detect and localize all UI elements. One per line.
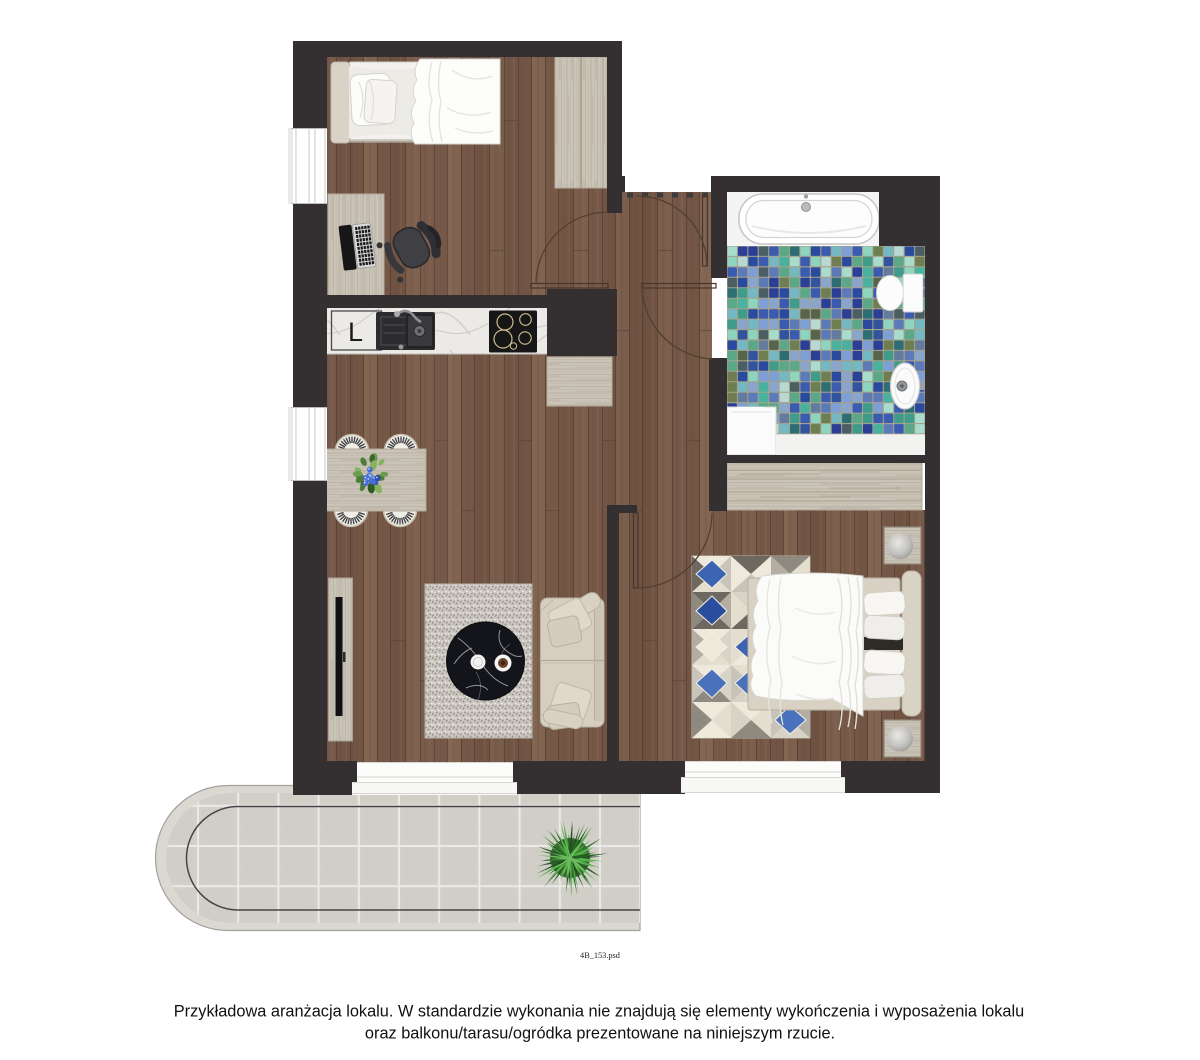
svg-text:L: L (348, 317, 363, 347)
svg-text:Przykładowa aranżacja lokalu.: Przykładowa aranżacja lokalu. W standard… (174, 1003, 1024, 1021)
svg-text:4B_153.psd: 4B_153.psd (580, 951, 621, 960)
svg-text:oraz balkonu/tarasu/ogródka pr: oraz balkonu/tarasu/ogródka prezentowane… (365, 1025, 835, 1043)
